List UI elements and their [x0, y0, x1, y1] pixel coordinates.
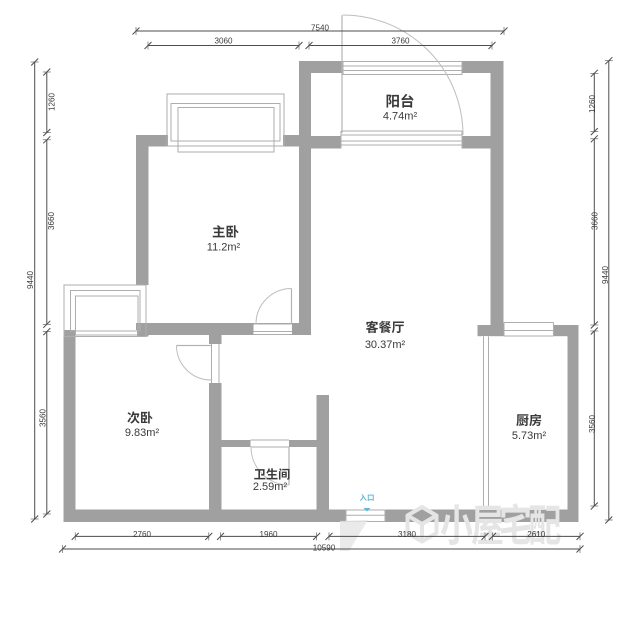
- svg-text:9440: 9440: [26, 271, 35, 290]
- svg-text:2610: 2610: [527, 530, 546, 539]
- svg-text:30.37m²: 30.37m²: [365, 339, 406, 351]
- svg-text:11.2m²: 11.2m²: [207, 242, 241, 254]
- svg-text:3060: 3060: [214, 37, 233, 46]
- svg-text:9440: 9440: [601, 266, 610, 285]
- svg-text:1260: 1260: [588, 95, 597, 114]
- svg-text:2760: 2760: [133, 530, 152, 539]
- svg-text:4.74m²: 4.74m²: [383, 111, 418, 123]
- svg-text:9.83m²: 9.83m²: [125, 427, 160, 439]
- svg-text:3760: 3760: [391, 37, 410, 46]
- svg-text:2.59m²: 2.59m²: [253, 481, 288, 493]
- svg-text:3560: 3560: [39, 409, 48, 428]
- svg-text:3180: 3180: [398, 530, 417, 539]
- svg-text:3560: 3560: [588, 415, 597, 434]
- svg-text:3660: 3660: [47, 212, 56, 231]
- svg-text:10590: 10590: [313, 544, 336, 553]
- svg-text:7540: 7540: [311, 23, 330, 32]
- svg-text:5.73m²: 5.73m²: [512, 430, 547, 442]
- svg-text:1960: 1960: [260, 530, 279, 539]
- svg-text:1260: 1260: [48, 93, 57, 112]
- svg-text:3660: 3660: [591, 212, 600, 231]
